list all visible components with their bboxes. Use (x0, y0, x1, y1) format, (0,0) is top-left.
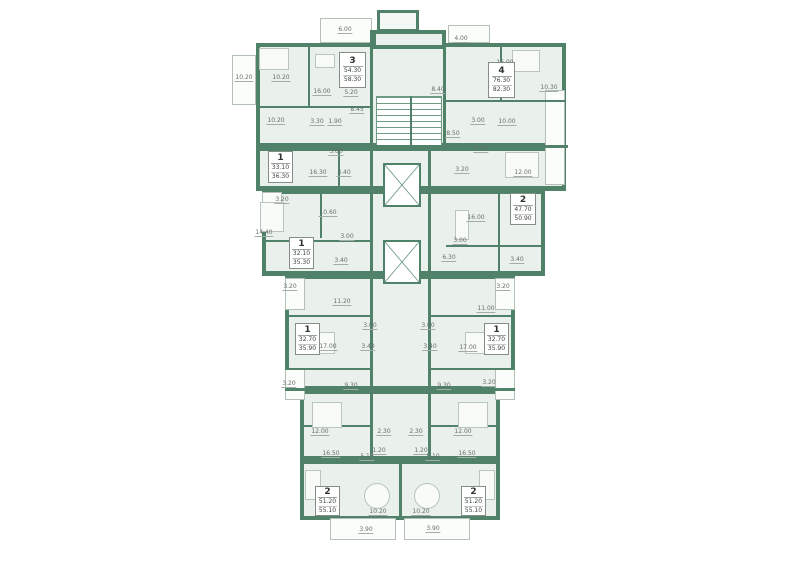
room-area-label: 5.10 (425, 453, 440, 461)
room-area-label: 3.40 (422, 343, 437, 351)
balcony (545, 90, 565, 185)
wall (285, 388, 515, 391)
room-area-label: 3.20 (454, 166, 469, 174)
apartment-rooms-count: 2 (513, 195, 532, 206)
apartment-rooms-count: 1 (271, 153, 289, 164)
floor-block (377, 10, 419, 32)
room-area-label: 3.40 (333, 257, 348, 265)
furniture (458, 402, 488, 428)
wall (498, 190, 500, 273)
room-area-label: 16.00 (466, 214, 485, 222)
room-area-label: 8.50 (445, 130, 460, 138)
balcony (495, 368, 515, 400)
room-area-label: 14.40 (254, 229, 273, 237)
room-area-label: 4.00 (453, 35, 468, 43)
room-area-label: 16.00 (312, 88, 331, 96)
apartment-label[interactable]: 132.7035.90 (295, 323, 320, 355)
apartment-label[interactable]: 132.7035.90 (484, 323, 509, 355)
apartment-total-area: 35.90 (487, 345, 505, 353)
room-area-label: 16.30 (308, 169, 327, 177)
room-area-label: 7.70 (473, 145, 488, 153)
apartment-total-area: 58.30 (343, 76, 363, 84)
apartment-total-area: 82.30 (492, 86, 512, 94)
apartment-rooms-count: 2 (464, 487, 482, 498)
room-area-label: 9.30 (343, 382, 358, 390)
room-area-label: 10.00 (497, 118, 516, 126)
room-area-label: 3.90 (358, 526, 373, 534)
room-area-label: 17.00 (458, 344, 477, 352)
room-area-label: 3.40 (509, 256, 524, 264)
apartment-total-area: 55.10 (464, 507, 482, 515)
apartment-living-area: 51.20 (464, 498, 482, 507)
apartment-label[interactable]: 133.1036.30 (268, 151, 293, 183)
room-area-label: 3.90 (425, 525, 440, 533)
room-area-label: 10.20 (368, 508, 387, 516)
staircase (376, 96, 442, 146)
apartment-total-area: 35.30 (292, 259, 310, 267)
elevator-shaft (383, 163, 421, 207)
room-area-label: 3.00 (452, 237, 467, 245)
room-area-label: 3.00 (362, 322, 377, 330)
room-area-label: 9.30 (436, 382, 451, 390)
apartment-label[interactable]: 251.2055.10 (461, 486, 486, 516)
wall (399, 460, 402, 520)
room-area-label: 6.30 (441, 254, 456, 262)
apartment-rooms-count: 2 (318, 487, 336, 498)
apartment-living-area: 32.70 (487, 336, 505, 345)
apartment-label[interactable]: 247.7050.90 (510, 193, 536, 225)
room-area-label: 16.50 (457, 450, 476, 458)
room-area-label: 3.00 (328, 148, 343, 156)
apartment-rooms-count: 4 (492, 66, 512, 77)
apartment-label[interactable]: 132.1035.30 (289, 237, 314, 269)
apartment-rooms-count: 1 (487, 325, 505, 336)
room-area-label: 11.20 (332, 298, 351, 306)
apartment-label[interactable]: 354.3058.30 (339, 52, 366, 88)
floor-block (372, 30, 446, 49)
apartment-rooms-count: 3 (343, 56, 363, 67)
room-area-label: 8.40 (430, 86, 445, 94)
room-area-label: 12.00 (513, 169, 532, 177)
apartment-label[interactable]: 251.2055.10 (315, 486, 340, 516)
dining-table (414, 483, 440, 509)
wall (430, 368, 515, 370)
room-area-label: 1.90 (327, 118, 342, 126)
wall (446, 245, 543, 247)
apartment-label[interactable]: 476.3082.30 (488, 62, 515, 98)
room-area-label: 12.00 (310, 428, 329, 436)
room-area-label: 5.20 (343, 89, 358, 97)
room-area-label: 16.50 (321, 450, 340, 458)
room-area-label: 11.00 (476, 305, 495, 313)
room-area-label: 5.10 (359, 453, 374, 461)
room-area-label: 10.20 (271, 74, 290, 82)
furniture (315, 54, 335, 68)
wall (446, 100, 566, 102)
wall (428, 147, 431, 462)
room-area-label: 3.00 (339, 233, 354, 241)
room-area-label: 3.40 (360, 343, 375, 351)
room-area-label: 10.20 (234, 74, 253, 82)
room-area-label: 10.20 (266, 117, 285, 125)
elevator-shaft (383, 240, 421, 284)
dining-table (364, 483, 390, 509)
room-area-label: 17.00 (318, 343, 337, 351)
room-area-label: 12.00 (453, 428, 472, 436)
wall (285, 315, 370, 317)
room-area-label: 2.30 (408, 428, 423, 436)
wall (256, 145, 568, 148)
apartment-living-area: 33.10 (271, 164, 289, 173)
room-area-label: 8.45 (349, 106, 364, 114)
room-area-label: 2.30 (376, 428, 391, 436)
apartment-total-area: 55.10 (318, 507, 336, 515)
apartment-total-area: 50.90 (513, 215, 532, 223)
room-area-label: 3.20 (281, 380, 296, 388)
apartment-living-area: 32.70 (298, 336, 316, 345)
room-area-label: 3.00 (420, 322, 435, 330)
wall (308, 43, 310, 106)
apartment-living-area: 76.30 (492, 77, 512, 86)
wall (285, 368, 370, 370)
floor-plan: 10.206.0010.2016.005.2010.203.301.908.45… (0, 0, 800, 565)
furniture (260, 202, 284, 232)
room-area-label: 3.20 (495, 283, 510, 291)
room-area-label: 3.20 (274, 196, 289, 204)
apartment-living-area: 51.20 (318, 498, 336, 507)
wall (410, 96, 412, 146)
wall (370, 30, 373, 460)
room-area-label: 10.20 (411, 508, 430, 516)
room-area-label: 3.20 (481, 379, 496, 387)
room-area-label: 3.30 (309, 118, 324, 126)
apartment-rooms-count: 1 (298, 325, 316, 336)
apartment-living-area: 47.70 (513, 206, 532, 215)
furniture (312, 402, 342, 428)
room-area-label: 6.00 (337, 26, 352, 34)
furniture (259, 48, 289, 70)
room-area-label: 10.30 (539, 84, 558, 92)
room-area-label: 3.20 (282, 283, 297, 291)
furniture (512, 50, 540, 72)
room-area-label: 10.60 (318, 209, 337, 217)
apartment-rooms-count: 1 (292, 239, 310, 250)
room-area-label: 3.40 (336, 169, 351, 177)
apartment-total-area: 36.30 (271, 173, 289, 181)
room-area-label: 3.00 (470, 117, 485, 125)
apartment-living-area: 32.10 (292, 250, 310, 259)
apartment-living-area: 54.30 (343, 67, 363, 76)
wall (430, 315, 515, 317)
apartment-total-area: 35.90 (298, 345, 316, 353)
